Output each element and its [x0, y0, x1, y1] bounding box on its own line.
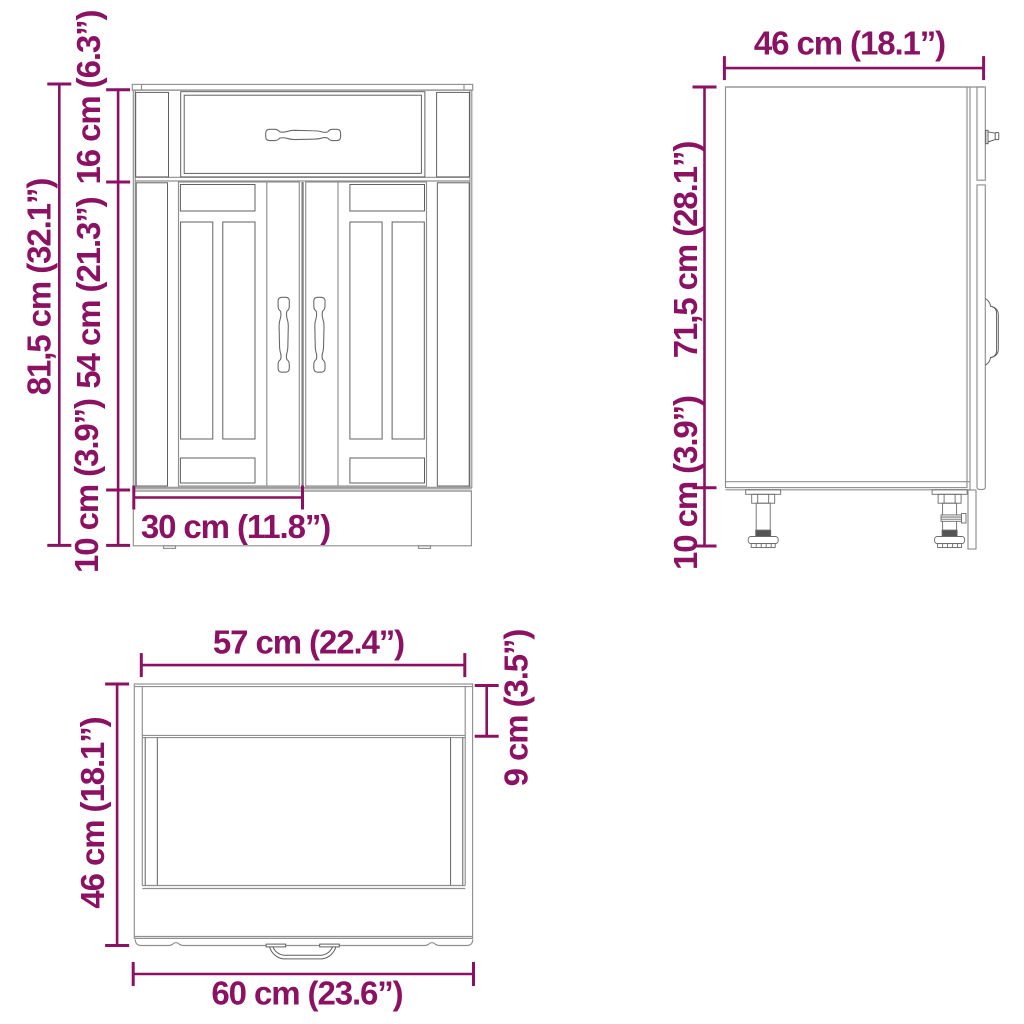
svg-text:9 cm (3.5”): 9 cm (3.5”): [498, 630, 535, 787]
svg-text:10 cm (3.9”): 10 cm (3.9”): [68, 399, 105, 573]
svg-text:54 cm (21.3”): 54 cm (21.3”): [70, 197, 107, 388]
svg-text:46 cm (18.1”): 46 cm (18.1”): [74, 717, 111, 908]
svg-text:81,5 cm (32.1”): 81,5 cm (32.1”): [21, 179, 58, 396]
svg-text:10 cm (3.9”): 10 cm (3.9”): [667, 396, 704, 570]
svg-text:46 cm (18.1”): 46 cm (18.1”): [754, 25, 945, 62]
svg-text:30 cm (11.8”): 30 cm (11.8”): [141, 508, 330, 545]
svg-text:57 cm (22.4”): 57 cm (22.4”): [213, 624, 404, 661]
svg-text:71,5 cm (28.1”): 71,5 cm (28.1”): [667, 142, 704, 359]
svg-text:16 cm (6.3”): 16 cm (6.3”): [70, 10, 107, 184]
svg-text:60 cm (23.6”): 60 cm (23.6”): [211, 974, 402, 1011]
